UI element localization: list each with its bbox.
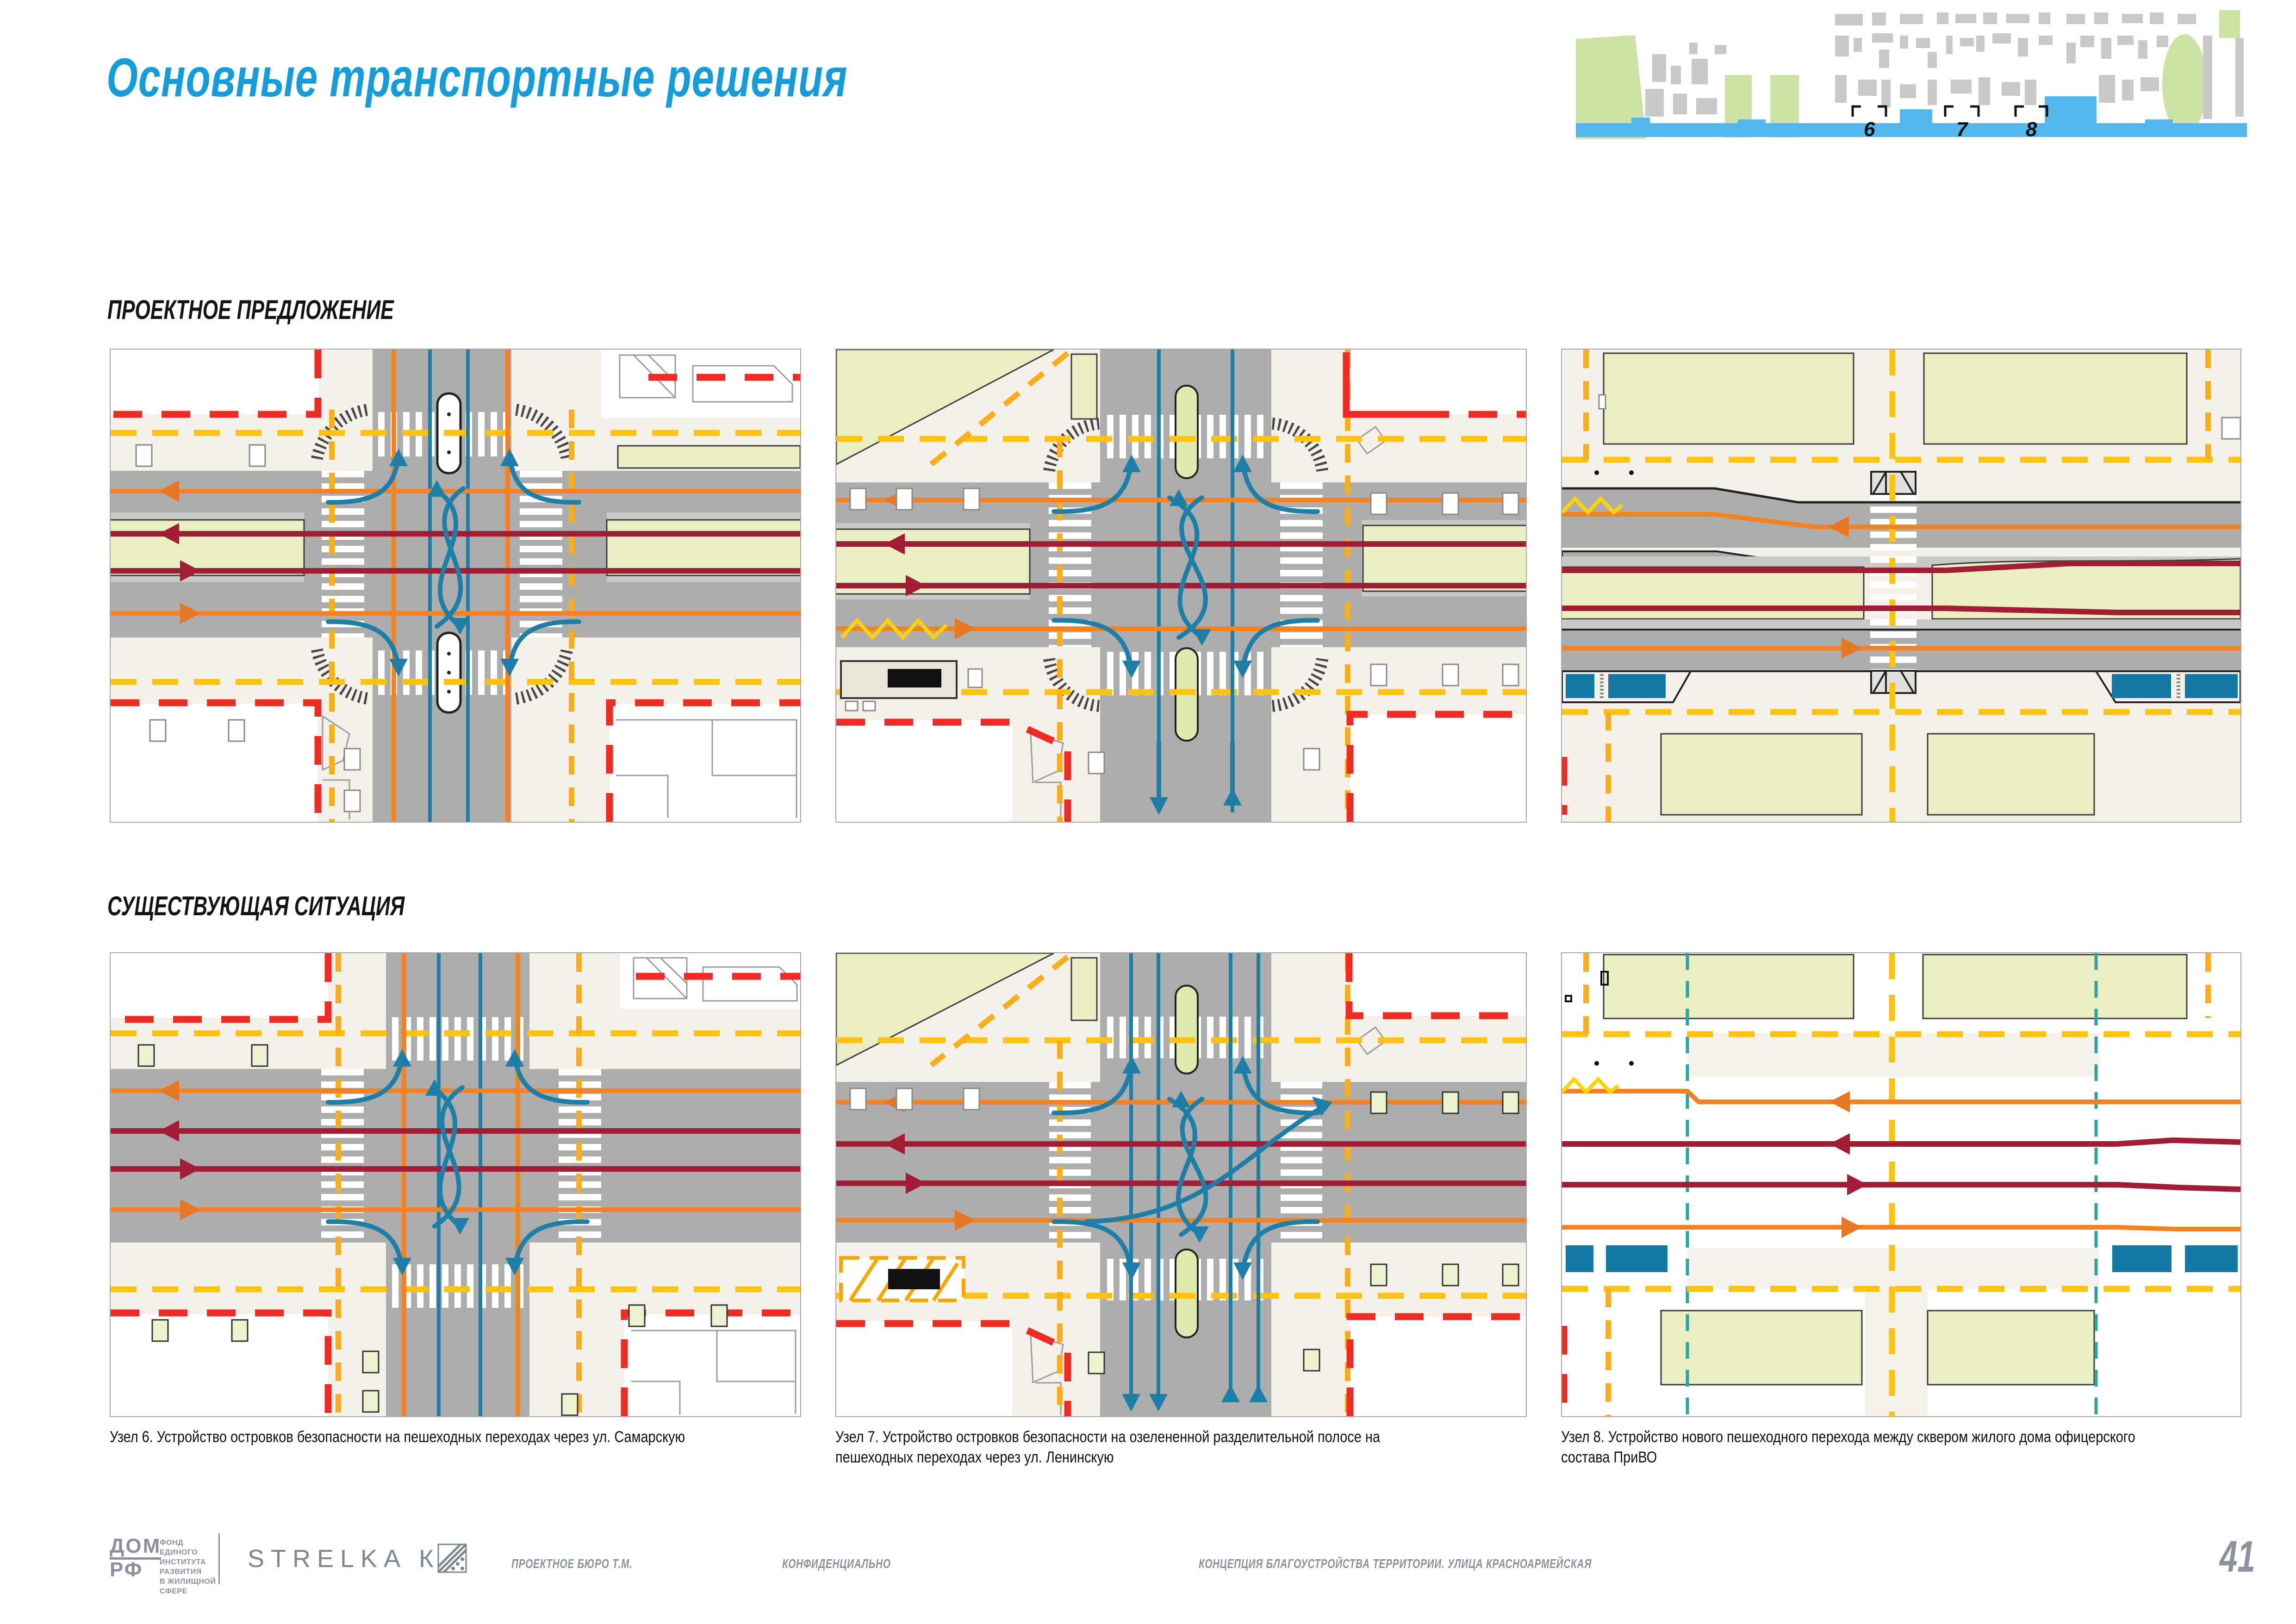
footer-confidential: КОНФИДЕНЦИАЛЬНО (782, 1556, 929, 1571)
map-panel-node8-existing (1561, 952, 2241, 1417)
domrf-logo: ДОМ РФ (110, 1536, 161, 1580)
caption-node6: Узел 6. Устройство островков безопасност… (110, 1427, 804, 1447)
strelka-logo: STRELKA КБ (248, 1544, 463, 1573)
map-panel-node7-existing (835, 952, 1527, 1417)
domrf-logo-line2: РФ (110, 1560, 161, 1580)
section-proposed-heading: ПРОЕКТНОЕ ПРЕДЛОЖЕНИЕ (107, 294, 494, 325)
overview-map: 6 7 8 (1576, 10, 2247, 139)
map-panel-node6-proposed (110, 349, 801, 823)
page-title: Основные транспортные решения (106, 46, 1108, 109)
domrf-logo-line1: ДОМ (110, 1536, 161, 1560)
bus-stop-zone (841, 1258, 964, 1300)
strelka-hatch-icon (437, 1543, 467, 1573)
footer-bureau: ПРОЕКТНОЕ БЮРО Т.М. (511, 1556, 675, 1571)
marker-8: 8 (2026, 118, 2037, 139)
marker-7: 7 (1956, 118, 1969, 139)
marker-6: 6 (1864, 118, 1875, 139)
page: Основные транспортные решения (0, 0, 2296, 1624)
footer-project: КОНЦЕПЦИЯ БЛАГОУСТРОЙСТВА ТЕРРИТОРИИ. УЛ… (1199, 1556, 1730, 1571)
green-median-island (1176, 386, 1198, 478)
section-existing-heading: СУЩЕСТВУЮЩАЯ СИТУАЦИЯ (107, 891, 509, 922)
map-panel-node7-proposed (835, 349, 1527, 823)
caption-node7: Узел 7. Устройство островков безопасност… (835, 1427, 1520, 1468)
green-median-island (1176, 986, 1198, 1074)
map-panel-node6-existing (110, 952, 801, 1417)
footer-divider (218, 1533, 220, 1584)
page-number: 41 (2206, 1531, 2255, 1582)
caption-node8: Узел 8. Устройство нового пешеходного пе… (1561, 1427, 2255, 1468)
domrf-logo-subtext: ФОНД ЕДИНОГО ИНСТИТУТА РАЗВИТИЯ В ЖИЛИЩН… (160, 1538, 216, 1596)
map-panel-node8-proposed (1561, 349, 2241, 823)
